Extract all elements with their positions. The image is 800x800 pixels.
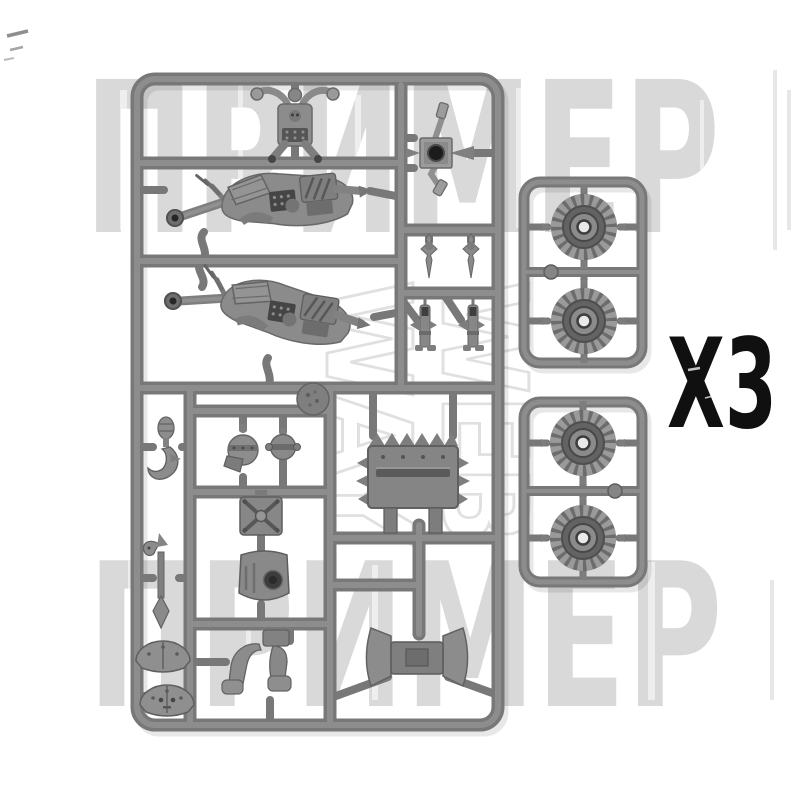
sprue-photo-canvas: ПРИМЕР ПРИМЕР WEB WAY	[0, 0, 800, 800]
head-part-1	[224, 424, 258, 472]
sprue-connector-boss	[608, 484, 622, 498]
quantity-label-text: X3	[667, 313, 777, 457]
torso-box-part	[240, 490, 282, 535]
corner-smudge	[4, 31, 28, 60]
wheel-part-2	[542, 279, 626, 363]
armor-plate-small-part	[239, 551, 289, 600]
round-boss-part	[297, 383, 329, 415]
product-photo: ПРИМЕР ПРИМЕР WEB WAY	[0, 0, 800, 800]
quantity-label: X3	[667, 313, 777, 457]
head-part-2	[266, 428, 301, 460]
sprue-connector-boss	[544, 265, 558, 279]
